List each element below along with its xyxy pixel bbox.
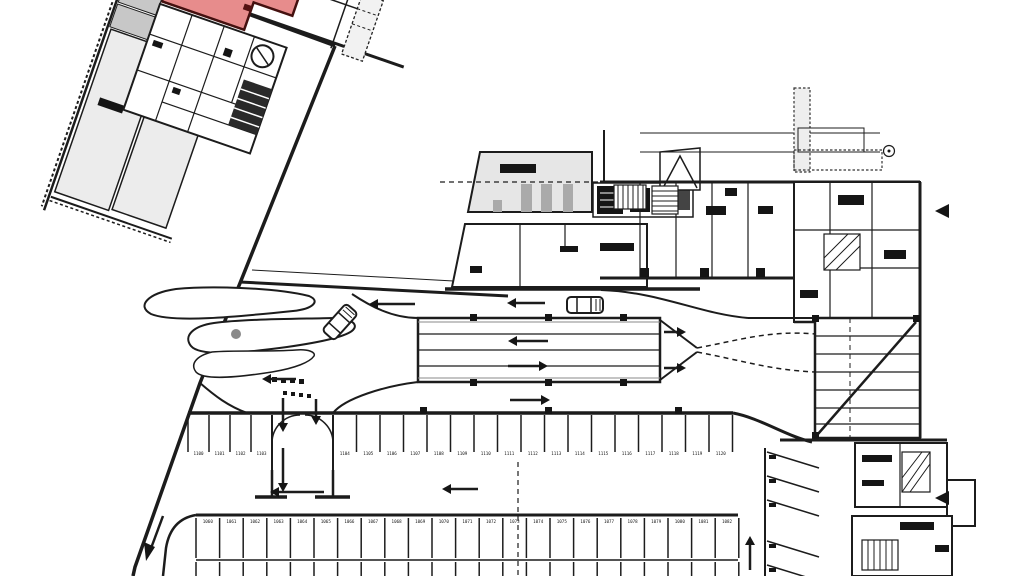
- angled-stall-number: [769, 568, 776, 572]
- stall-number: 1111: [504, 451, 515, 456]
- stall-number: 1102: [235, 451, 246, 456]
- stall-number: 1106: [387, 451, 398, 456]
- stall-number: 1065: [321, 519, 332, 524]
- stair-symbol: [862, 540, 898, 570]
- right-ramp: [812, 315, 920, 439]
- stall-number: 1113: [551, 451, 562, 456]
- stall-number: 1103: [256, 451, 267, 456]
- angled-stall-number: [769, 455, 776, 459]
- stall-number: 1075: [557, 519, 568, 524]
- stall-number: 1109: [457, 451, 468, 456]
- stall-number: 1072: [486, 519, 497, 524]
- stall-number: 1074: [533, 519, 544, 524]
- stair-hatch-4: [902, 452, 930, 492]
- stall-number: 1119: [692, 451, 703, 456]
- stall-number: 1107: [410, 451, 421, 456]
- stall-number: 1078: [628, 519, 639, 524]
- stall-number: 1079: [651, 519, 662, 524]
- floor-plan-canvas: 1100110111021103110411051106110711081109…: [0, 0, 1024, 576]
- car-icon: [567, 297, 603, 313]
- stall-number: 1077: [604, 519, 615, 524]
- stall-number: 1061: [226, 519, 237, 524]
- stall-number: 1081: [698, 519, 709, 524]
- stall-number: 1073: [510, 519, 521, 524]
- stall-number: 1069: [415, 519, 426, 524]
- stall-number: 1068: [392, 519, 403, 524]
- stair-hatch-2: [652, 186, 678, 214]
- stall-number: 1116: [622, 451, 633, 456]
- stall-number: 1105: [363, 451, 374, 456]
- floor-plan-drawing: 1100110111021103110411051106110711081109…: [0, 0, 1024, 576]
- island-dot: [231, 329, 241, 339]
- central-hall-label: [600, 243, 634, 251]
- stall-number: 1076: [580, 519, 591, 524]
- stall-number: 1101: [214, 451, 225, 456]
- stall-number: 1108: [434, 451, 445, 456]
- stall-number: 1060: [203, 519, 214, 524]
- canopy-strip-vertical: [794, 88, 810, 172]
- stall-number: 1070: [439, 519, 450, 524]
- column-marker-dot: [888, 150, 891, 153]
- stall-number: 1066: [344, 519, 355, 524]
- stall-number: 1064: [297, 519, 308, 524]
- stall-number: 1118: [669, 451, 680, 456]
- stall-number: 1062: [250, 519, 261, 524]
- stair-hatch-3: [824, 234, 860, 270]
- angled-stall-number: [769, 544, 776, 548]
- stall-number: 1063: [274, 519, 285, 524]
- angled-stall-number: [769, 479, 776, 483]
- angled-stall-number: [769, 503, 776, 507]
- stall-number: 1080: [675, 519, 686, 524]
- ramp-room-label: [500, 164, 536, 173]
- stall-number: 1082: [722, 519, 733, 524]
- stall-number: 1117: [645, 451, 656, 456]
- stall-number: 1115: [598, 451, 609, 456]
- stall-number: 1112: [528, 451, 539, 456]
- stall-number: 1071: [462, 519, 473, 524]
- stair-hatch-1: [614, 185, 646, 209]
- stall-number: 1104: [340, 451, 351, 456]
- stall-number: 1100: [193, 451, 204, 456]
- stall-number: 1067: [368, 519, 379, 524]
- stall-number: 1120: [716, 451, 727, 456]
- stall-number: 1114: [575, 451, 586, 456]
- stall-number: 1110: [481, 451, 492, 456]
